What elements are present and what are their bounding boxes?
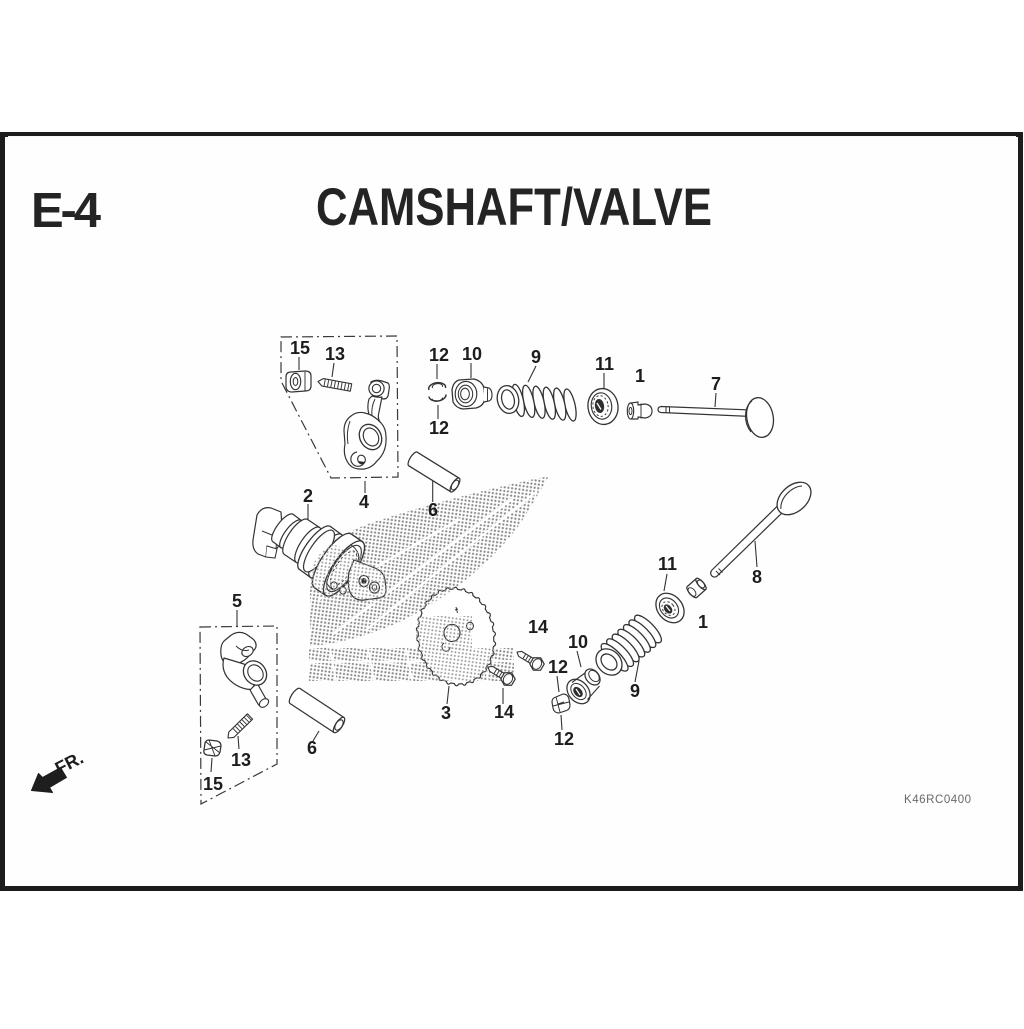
svg-text:8: 8 — [752, 567, 762, 587]
svg-text:6: 6 — [428, 500, 438, 520]
svg-text:13: 13 — [231, 750, 251, 770]
svg-text:1: 1 — [635, 366, 645, 386]
svg-text:11: 11 — [595, 354, 614, 374]
svg-text:12: 12 — [429, 418, 449, 438]
svg-text:14: 14 — [494, 702, 514, 722]
svg-text:4: 4 — [359, 492, 369, 512]
svg-text:1: 1 — [698, 612, 708, 632]
svg-text:15: 15 — [203, 774, 223, 794]
svg-text:9: 9 — [630, 681, 640, 701]
svg-text:13: 13 — [325, 344, 345, 364]
svg-text:5: 5 — [232, 591, 242, 611]
svg-text:11: 11 — [658, 554, 677, 574]
svg-text:2: 2 — [303, 486, 313, 506]
svg-text:10: 10 — [568, 632, 588, 652]
svg-text:15: 15 — [290, 338, 310, 358]
svg-text:3: 3 — [441, 703, 451, 723]
svg-text:12: 12 — [548, 657, 568, 677]
svg-text:9: 9 — [531, 347, 541, 367]
svg-text:10: 10 — [462, 344, 482, 364]
svg-text:E-4: E-4 — [31, 184, 101, 238]
svg-text:12: 12 — [554, 729, 574, 749]
svg-text:12: 12 — [429, 345, 449, 365]
svg-text:6: 6 — [307, 738, 317, 758]
svg-text:14: 14 — [528, 617, 548, 637]
svg-text:CAMSHAFT/VALVE: CAMSHAFT/VALVE — [316, 178, 712, 237]
svg-text:K46RC0400: K46RC0400 — [904, 794, 972, 806]
svg-text:7: 7 — [711, 374, 721, 394]
